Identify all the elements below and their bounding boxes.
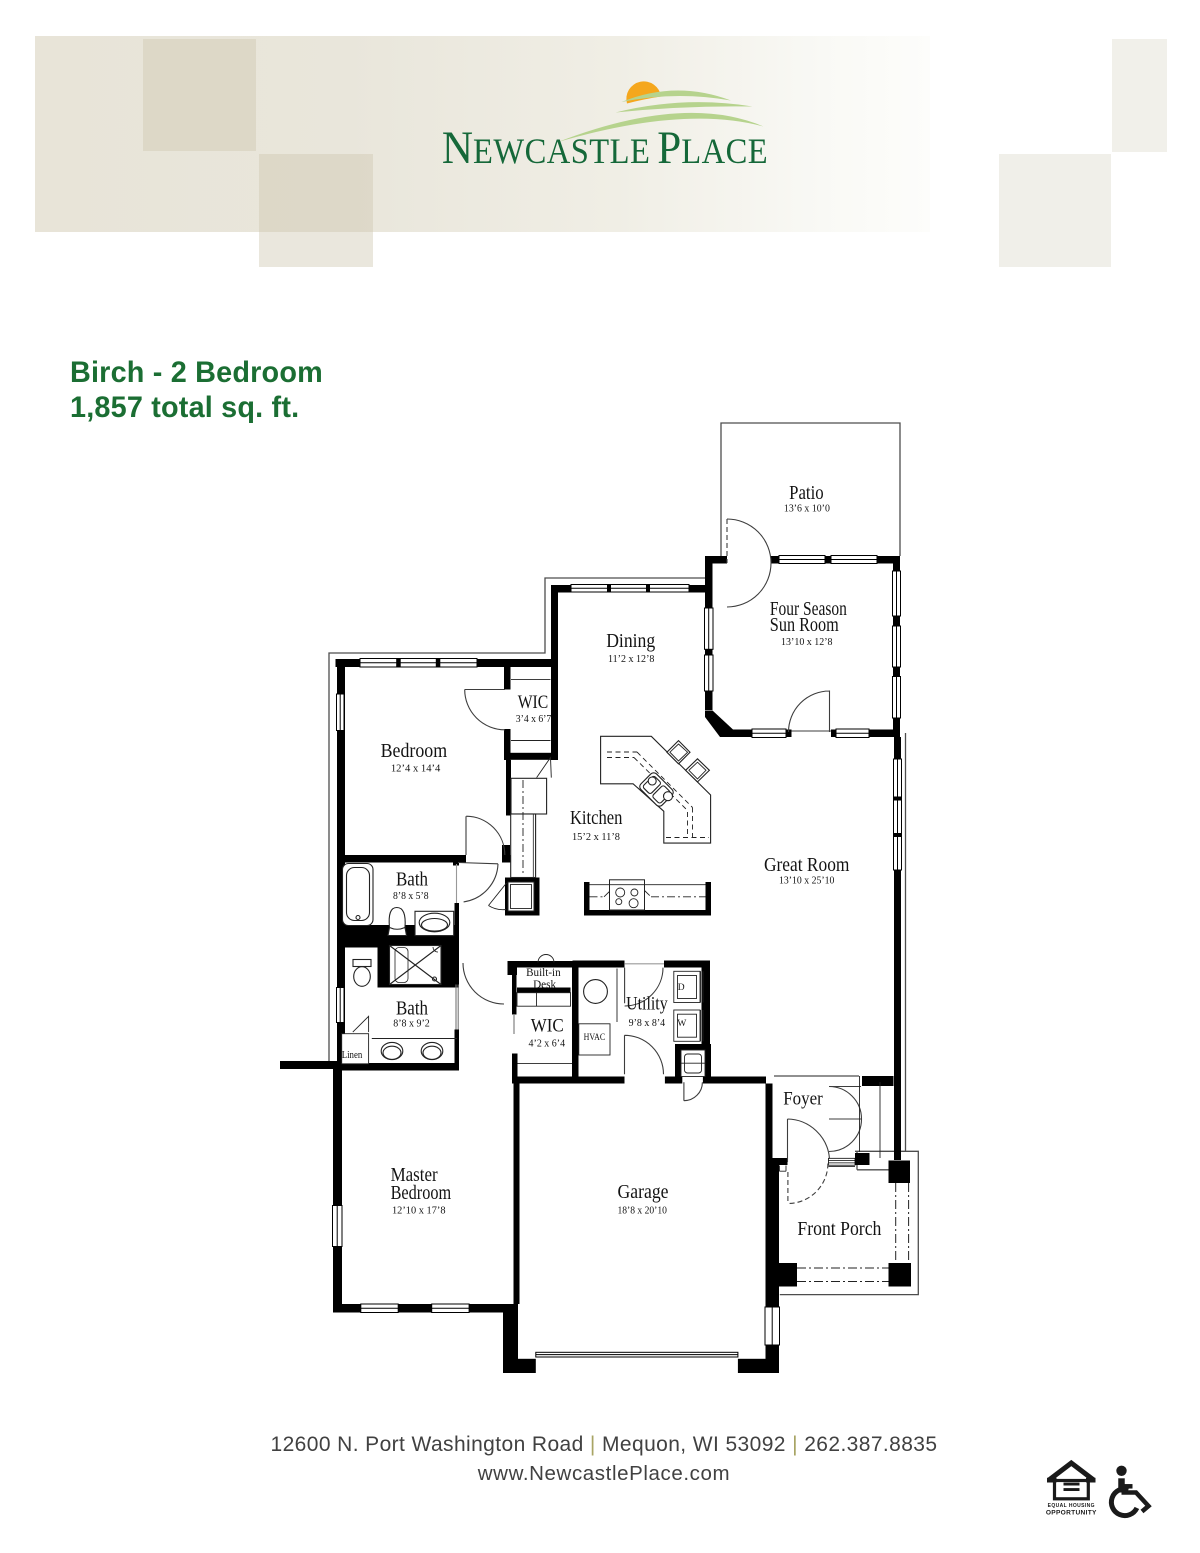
svg-text:EQUAL HOUSING: EQUAL HOUSING bbox=[1048, 1503, 1095, 1509]
svg-text:OPPORTUNITY: OPPORTUNITY bbox=[1046, 1510, 1097, 1517]
